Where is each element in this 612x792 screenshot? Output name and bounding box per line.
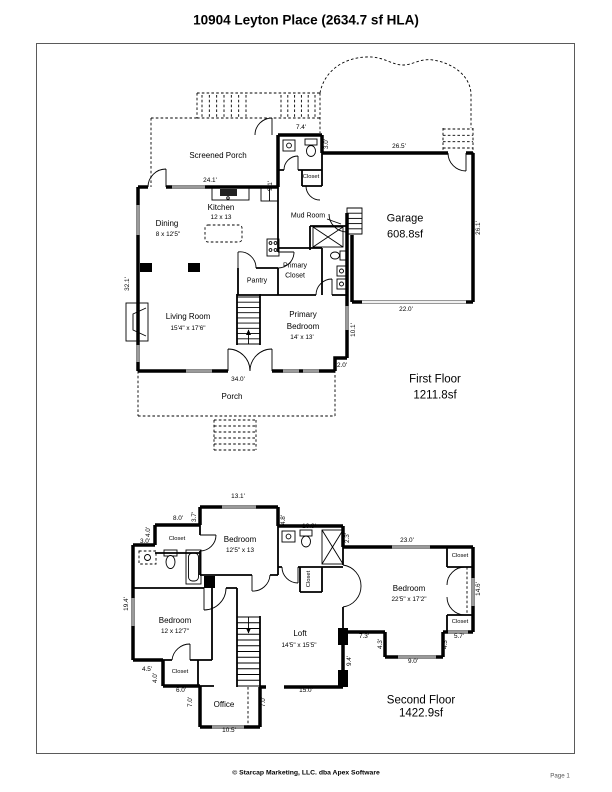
hall-closet-label: Closet <box>303 175 319 181</box>
footer-copyright: © Starcap Marketing, LLC. dba Apex Softw… <box>232 770 380 777</box>
bedroom-left-label: Bedroom <box>159 617 191 625</box>
dimension-label: 4.5' <box>142 667 152 673</box>
dining-label: Dining <box>156 220 179 228</box>
closet-right-top-label: Closet <box>452 554 468 560</box>
primary-closet-label-1: Primary <box>283 263 307 270</box>
mud-room-steps-outline <box>347 208 362 234</box>
kitchen-label: Kitchen <box>208 204 235 212</box>
pantry-label: Pantry <box>247 278 267 285</box>
dimension-label: 4.0' <box>146 527 152 537</box>
garage-label: Garage <box>387 214 424 225</box>
hall-bath-fixtures <box>283 139 317 157</box>
primary-bedroom-size-label: 14' x 13' <box>290 335 313 341</box>
loft-size-label: 14'5" x 15'5" <box>281 643 316 649</box>
left-bath-fixtures <box>139 550 201 584</box>
closet-hall-label: Closet <box>307 571 313 587</box>
driveway-outline <box>320 57 471 128</box>
kitchen-size-label: 12 x 13 <box>211 215 232 221</box>
bedroom-right-size-label: 22'5" x 17'2" <box>391 597 426 603</box>
dimension-label: 7.4' <box>296 125 306 131</box>
office-label: Office <box>214 701 235 709</box>
dimension-label: 34.0' <box>231 377 245 383</box>
front-porch-steps-sides <box>214 420 256 450</box>
primary-bedroom-label-2: Bedroom <box>287 323 319 331</box>
dimension-label: 24.1' <box>203 178 217 184</box>
footer-page-number: Page 1 <box>550 773 570 780</box>
bedroom-top-label: Bedroom <box>224 536 256 544</box>
primary-clos et-label-2: Closet <box>285 273 305 280</box>
closet-right-bottom-label: Closet <box>452 620 468 626</box>
dimension-label: 2.3' <box>345 533 351 543</box>
porch-deck-steps-right <box>281 95 315 117</box>
dimension-label: 9.4' <box>347 656 353 666</box>
dimension-label: 3.7' <box>192 512 198 522</box>
stair-landing <box>204 576 215 588</box>
first-floor-name: First Floor <box>409 374 461 386</box>
screened-porch-label: Screened Porch <box>189 152 246 160</box>
hall-bath-fixtures-2f <box>282 530 343 564</box>
wall-stub-right <box>188 263 200 272</box>
first-floor-area: 1211.8sf <box>413 390 456 402</box>
dimension-label: 7.3' <box>359 634 369 640</box>
bedroom-left-size-label: 12 x 12'7" <box>161 629 189 635</box>
dimension-label: 9.1' <box>268 181 274 191</box>
living-room-label: Living Room <box>166 313 210 321</box>
living-room-size-label: 15'4" x 17'6" <box>170 326 205 332</box>
dimension-label: 23.0' <box>400 538 414 544</box>
garage-door <box>362 301 466 304</box>
dimension-label: 15.0' <box>299 688 313 694</box>
dimension-label: 10.5' <box>222 728 236 734</box>
kitchen-island <box>205 225 242 242</box>
mud-room-steps <box>347 208 362 234</box>
dimension-label: 8.0' <box>173 516 183 522</box>
garage-steps-sides <box>443 128 473 153</box>
dimension-label: 2.0' <box>337 363 347 369</box>
floor-plan-page: 10904 Leyton Place (2634.7 sf HLA) <box>0 0 612 792</box>
dimension-label: 22.0' <box>399 307 413 313</box>
floor-plan-canvas <box>0 0 612 792</box>
dimension-label: 10.9' <box>302 524 316 530</box>
dimension-label: 32.1' <box>125 277 131 291</box>
dimension-label: 26.5' <box>392 144 406 150</box>
dimension-label: 4.3' <box>378 639 384 649</box>
primary-bedroom-label-1: Primary <box>289 311 317 319</box>
kitchen-fixtures <box>212 188 279 256</box>
dimension-label: 3.0' <box>324 139 330 149</box>
dimension-label: 3.0' <box>140 539 150 545</box>
mud-room-leader-line <box>327 219 341 224</box>
second-floor-name: Second Floor <box>387 695 455 707</box>
wall-stub-left <box>140 263 152 272</box>
dimension-label: 6.0' <box>176 688 186 694</box>
closet-bottom-left-label: Closet <box>172 670 188 676</box>
dimension-label: 13.1' <box>231 494 245 500</box>
dining-size-label: 8 x 12'5" <box>156 232 180 238</box>
porch-deck-steps-left <box>202 95 246 117</box>
second-floor-interior-walls <box>133 525 473 687</box>
dimension-label: 9.0' <box>408 659 418 665</box>
dimension-label: 10.1' <box>351 323 357 337</box>
dimension-label: 7.0' <box>188 697 194 707</box>
dimension-label: 7.0' <box>261 697 267 707</box>
garage-area-label: 608.8sf <box>387 230 423 241</box>
dimension-label: 4.3' <box>443 639 449 649</box>
dimension-label: 4.8' <box>281 515 287 525</box>
mud-room-label: Mud Room <box>291 213 325 220</box>
closet-top-left-label: Closet <box>169 537 185 543</box>
primary-bath-fixtures <box>313 227 346 289</box>
front-porch-steps <box>214 420 256 450</box>
dimension-label: 14.6' <box>476 582 482 596</box>
bedroom-top-size-label: 12'5" x 13 <box>226 548 254 554</box>
loft-label: Loft <box>293 630 306 638</box>
garage-steps <box>443 129 473 148</box>
second-floor-area: 1422.9sf <box>399 708 443 720</box>
dimension-label: 19.4' <box>124 597 130 611</box>
bedroom-right-label: Bedroom <box>393 585 425 593</box>
porch-label: Porch <box>222 393 243 401</box>
dimension-label: 4.0' <box>153 673 159 683</box>
dimension-label: 26.1' <box>476 221 482 235</box>
dimension-label: 5.7' <box>454 634 464 640</box>
